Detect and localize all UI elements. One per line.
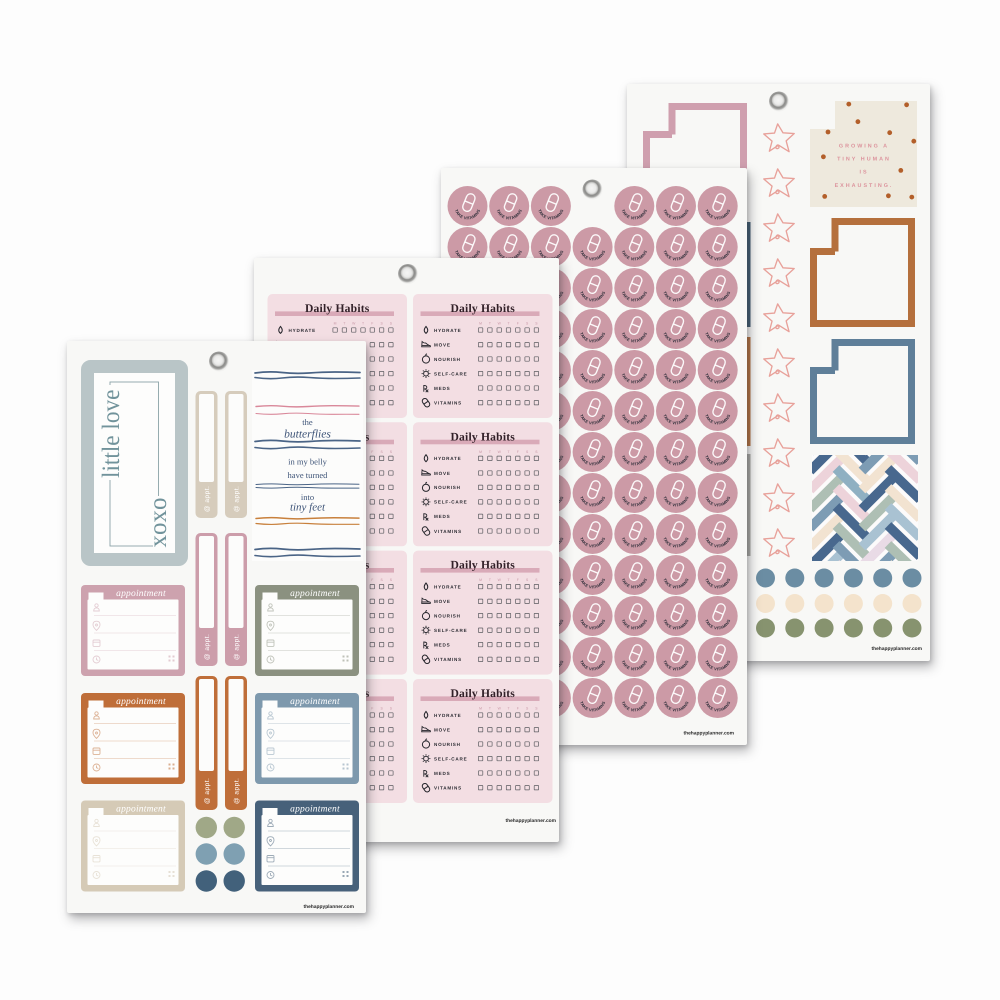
svg-text:xoxo: xoxo — [145, 498, 172, 548]
svg-text:thehappyplanner.com: thehappyplanner.com — [683, 731, 734, 737]
svg-text:butterflies: butterflies — [284, 429, 331, 441]
svg-text:thehappyplanner.com: thehappyplanner.com — [303, 904, 354, 910]
svg-text:tiny feet: tiny feet — [290, 502, 326, 514]
svg-text:IS: IS — [859, 170, 868, 176]
svg-text:@ appt.: @ appt. — [234, 634, 241, 660]
svg-text:@ appt.: @ appt. — [204, 486, 211, 512]
svg-text:@ appt.: @ appt. — [204, 634, 211, 660]
svg-text:@ appt.: @ appt. — [234, 778, 241, 804]
svg-text:TINY HUMAN: TINY HUMAN — [837, 157, 891, 163]
svg-text:@ appt.: @ appt. — [204, 778, 211, 804]
svg-text:have turned: have turned — [288, 470, 329, 480]
svg-text:@ appt.: @ appt. — [234, 486, 241, 512]
svg-text:GROWING A: GROWING A — [839, 144, 889, 150]
svg-text:little love: little love — [98, 390, 125, 478]
svg-text:the: the — [302, 417, 313, 427]
svg-text:EXHAUSTING.: EXHAUSTING. — [835, 183, 894, 189]
svg-text:in my belly: in my belly — [288, 457, 327, 467]
svg-text:thehappyplanner.com: thehappyplanner.com — [871, 646, 922, 652]
svg-text:into: into — [301, 492, 314, 502]
svg-text:thehappyplanner.com: thehappyplanner.com — [505, 818, 556, 824]
